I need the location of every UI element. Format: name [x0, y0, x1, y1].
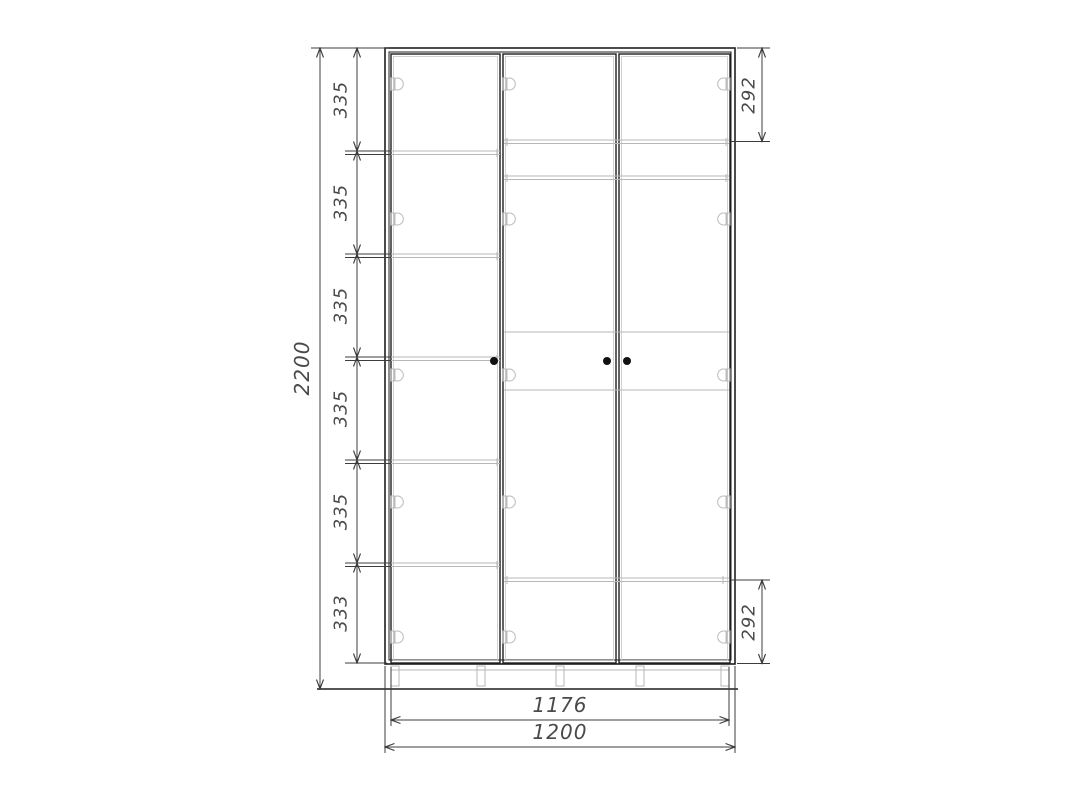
dimension-overall-height: 2200: [290, 48, 320, 689]
hinge-icon: [391, 369, 403, 381]
door-knob-icon: [623, 357, 631, 365]
door-knob-icon: [603, 357, 611, 365]
drawing-page: 2200 335 335 335 335 335 333 292 292: [0, 0, 1067, 800]
door-right-hinges: [718, 78, 730, 643]
door-middle-edge-band: [506, 57, 614, 661]
left-column-shelves: [391, 149, 500, 569]
hinge-icon: [718, 631, 730, 643]
base-feet: [391, 666, 729, 686]
hinge-icon: [391, 496, 403, 508]
shelf-line: [391, 458, 500, 466]
shelf-line: [391, 355, 500, 363]
door-middle: [503, 54, 616, 663]
hinge-icon: [503, 496, 515, 508]
door-middle-hinges: [503, 78, 515, 643]
technical-drawing-canvas: 2200 335 335 335 335 335 333 292 292: [0, 0, 1067, 800]
ext-tick: [345, 151, 391, 155]
door-right-edge-band: [622, 57, 728, 661]
hinge-icon: [391, 213, 403, 225]
foot-symbol: [391, 666, 399, 686]
dim-label-overall-width: 1200: [533, 720, 588, 744]
foot-symbol: [636, 666, 644, 686]
hinge-icon: [503, 631, 515, 643]
hinge-icon: [391, 78, 403, 90]
dimension-doors-width: 1176: [391, 693, 729, 720]
wardrobe-carcass: [317, 48, 738, 689]
door-left-edge-band: [394, 57, 498, 661]
dimension-bottom-right: 292: [738, 580, 762, 664]
interior-lines: [391, 138, 729, 584]
foot-symbol: [556, 666, 564, 686]
dim-label-top-right: 292: [738, 76, 759, 113]
foot-symbol: [721, 666, 729, 686]
dim-label-chain-6: 333: [330, 594, 351, 631]
dim-label-chain-5: 335: [330, 493, 351, 530]
hinge-icon: [718, 496, 730, 508]
shelf-line: [391, 252, 500, 260]
extension-lines: [311, 48, 770, 753]
dimensions: 2200 335 335 335 335 335 333 292 292: [290, 48, 770, 753]
dimension-top-right: 292: [738, 48, 762, 142]
hinge-icon: [503, 78, 515, 90]
hinge-icon: [391, 631, 403, 643]
dim-label-doors-width: 1176: [533, 693, 588, 717]
door-right: [619, 54, 730, 663]
door-knob-icon: [490, 357, 498, 365]
dim-label-bottom-right: 292: [738, 603, 759, 640]
dim-label-overall-height: 2200: [290, 341, 314, 396]
dimension-chain-left: 335 335 335 335 335 333: [330, 48, 357, 663]
dim-label-chain-2: 335: [330, 184, 351, 221]
ext-tick: [345, 460, 391, 464]
ext-tick: [345, 254, 391, 258]
shelf-line: [391, 561, 500, 569]
dimension-overall-width: 1200: [385, 720, 735, 747]
hinge-icon: [718, 369, 730, 381]
dim-label-chain-1: 335: [330, 81, 351, 118]
ext-tick: [345, 563, 391, 567]
dim-label-chain-4: 335: [330, 390, 351, 427]
doors: [391, 54, 730, 663]
ext-tick: [345, 357, 391, 361]
hinge-icon: [503, 213, 515, 225]
foot-symbol: [477, 666, 485, 686]
hinge-icon: [718, 213, 730, 225]
shelf-line: [391, 149, 500, 157]
hinge-icon: [503, 369, 515, 381]
door-left: [391, 54, 500, 663]
dim-label-chain-3: 335: [330, 287, 351, 324]
hinge-icon: [718, 78, 730, 90]
